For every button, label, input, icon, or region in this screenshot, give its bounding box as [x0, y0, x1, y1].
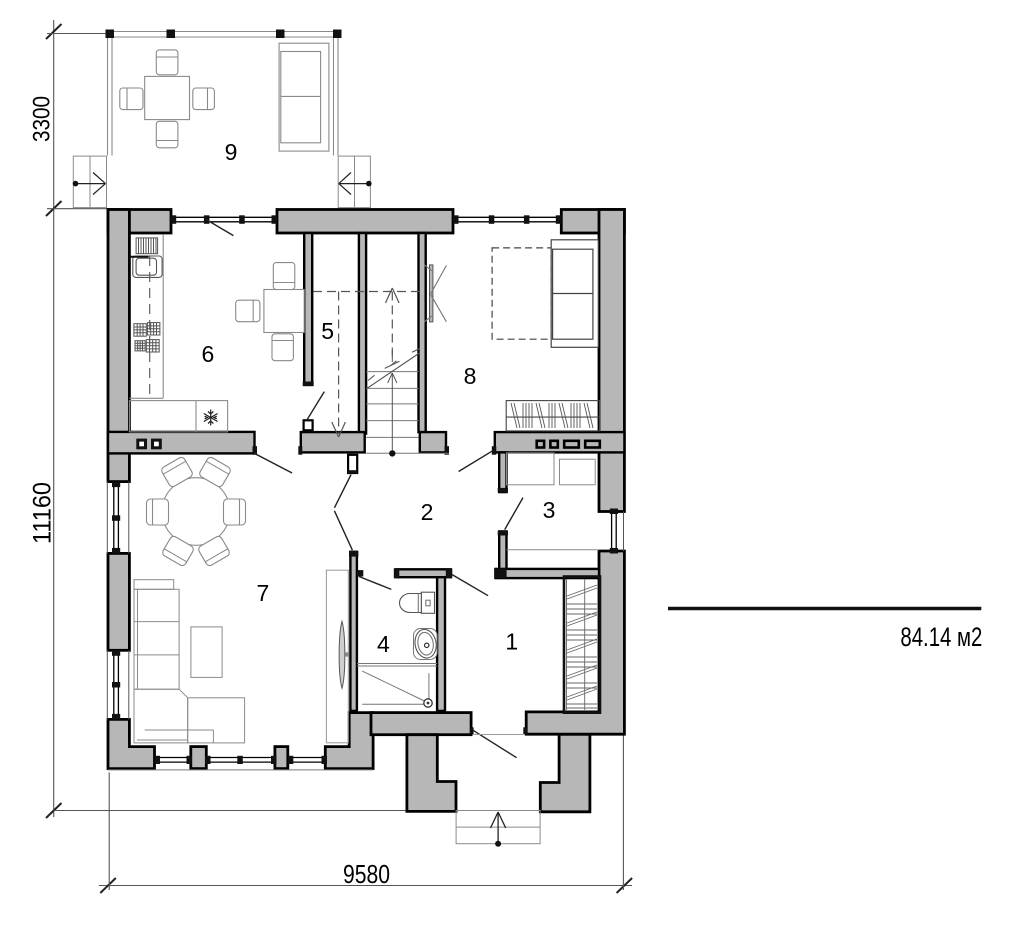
svg-text:1: 1 [505, 629, 518, 655]
svg-text:9: 9 [225, 139, 238, 165]
svg-text:3: 3 [543, 497, 556, 523]
svg-text:84.14 м2: 84.14 м2 [900, 622, 982, 652]
svg-text:9580: 9580 [343, 859, 390, 889]
svg-text:6: 6 [202, 341, 215, 367]
svg-text:3300: 3300 [28, 96, 55, 142]
svg-text:11160: 11160 [29, 482, 57, 544]
svg-text:7: 7 [257, 580, 270, 606]
svg-text:5: 5 [321, 318, 334, 344]
svg-text:4: 4 [377, 631, 390, 657]
svg-text:2: 2 [421, 499, 434, 525]
svg-text:8: 8 [464, 363, 477, 389]
